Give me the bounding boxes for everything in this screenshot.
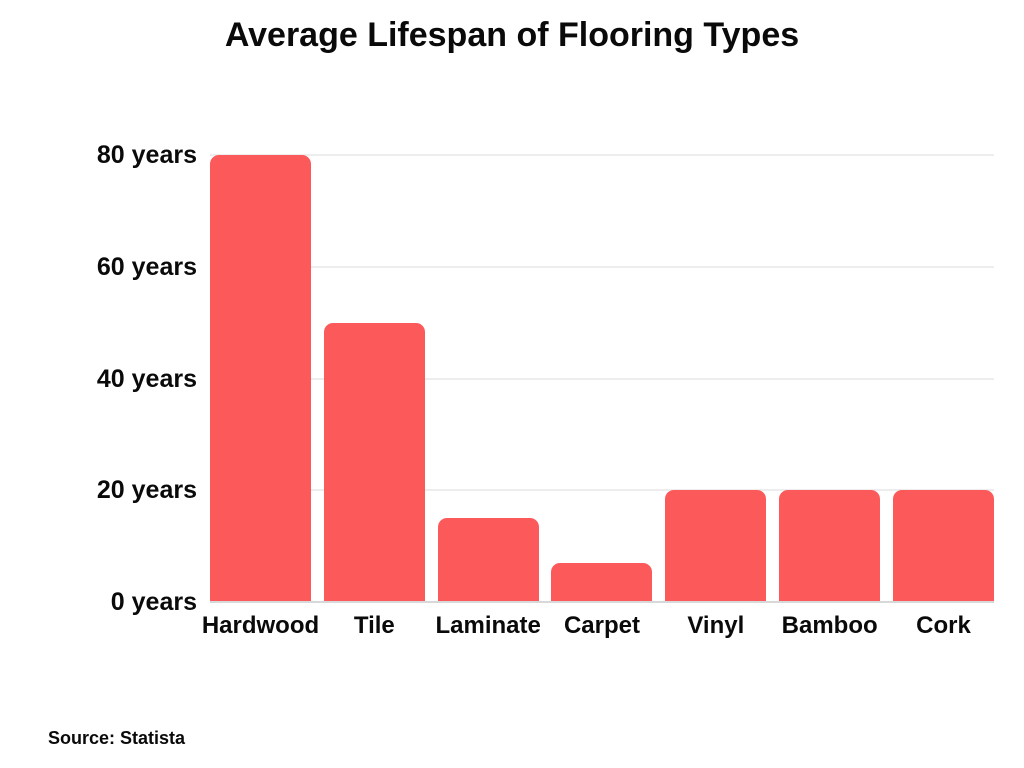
x-label-cork: Cork — [916, 613, 971, 639]
x-label-hardwood: Hardwood — [202, 613, 319, 639]
x-label-laminate: Laminate — [435, 613, 540, 639]
x-axis-line — [210, 601, 994, 603]
y-axis-labels: 0 years20 years40 years60 years80 years — [0, 155, 197, 602]
source-note: Source: Statista — [48, 726, 185, 750]
bar-laminate: Laminate — [438, 518, 539, 602]
x-label-vinyl: Vinyl — [687, 613, 744, 639]
bars-layer: HardwoodTileLaminateCarpetVinylBambooCor… — [210, 155, 994, 602]
bar-tile: Tile — [324, 323, 425, 602]
bar-vinyl: Vinyl — [665, 490, 766, 602]
y-tick-label-0: 0 years — [0, 586, 197, 618]
bar-cork: Cork — [893, 490, 994, 602]
bar-hardwood: Hardwood — [210, 155, 311, 602]
bar-chart: 0 years20 years40 years60 years80 years … — [0, 155, 1024, 602]
x-label-bamboo: Bamboo — [782, 613, 878, 639]
y-tick-label-40: 40 years — [0, 363, 197, 395]
x-label-tile: Tile — [354, 613, 395, 639]
bar-bamboo: Bamboo — [779, 490, 880, 602]
y-tick-label-80: 80 years — [0, 139, 197, 171]
chart-title: Average Lifespan of Flooring Types — [0, 14, 1024, 56]
x-label-carpet: Carpet — [564, 613, 640, 639]
y-tick-label-60: 60 years — [0, 251, 197, 283]
y-tick-label-20: 20 years — [0, 474, 197, 506]
bar-carpet: Carpet — [551, 563, 652, 602]
plot-area: HardwoodTileLaminateCarpetVinylBambooCor… — [210, 155, 994, 602]
